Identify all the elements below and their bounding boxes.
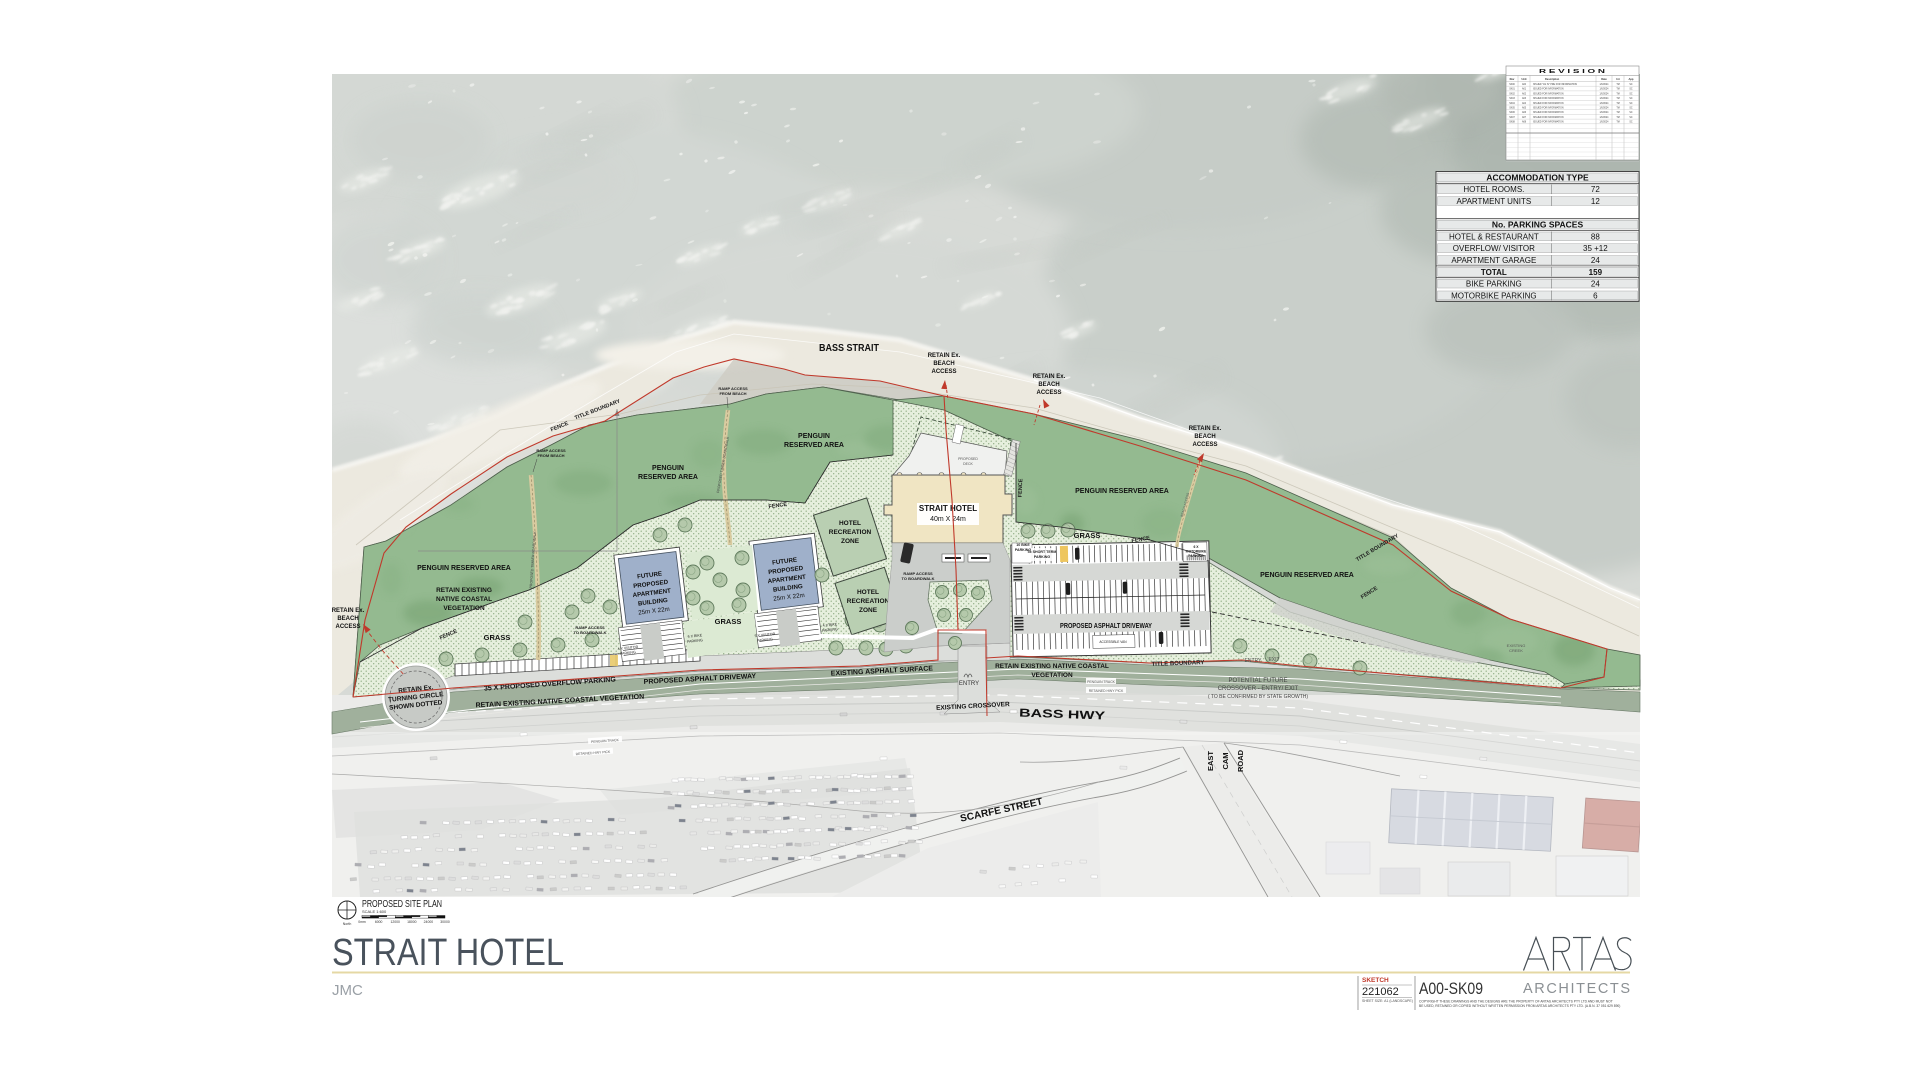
- svg-text:TM: TM: [1616, 93, 1619, 95]
- svg-text:ACCOMMODATION TYPE: ACCOMMODATION TYPE: [1486, 172, 1589, 182]
- svg-text:0mm: 0mm: [358, 920, 366, 924]
- svg-text:BEACH: BEACH: [337, 616, 358, 622]
- svg-text:RETAIN Ex.: RETAIN Ex.: [1033, 374, 1066, 380]
- svg-text:FENCE: FENCE: [1018, 478, 1025, 497]
- svg-text:TM: TM: [1616, 89, 1619, 91]
- svg-text:40m X 24m: 40m X 24m: [930, 516, 966, 523]
- svg-text:159: 159: [1589, 268, 1603, 277]
- svg-text:TO BOARDWALK: TO BOARDWALK: [901, 576, 934, 581]
- svg-text:PARKING: PARKING: [1015, 548, 1032, 552]
- svg-text:Date: Date: [1601, 77, 1607, 81]
- svg-text:No. PARKING SPACES: No. PARKING SPACES: [1492, 220, 1584, 230]
- svg-text:PENGUIN: PENGUIN: [652, 465, 684, 472]
- svg-text:88: 88: [1591, 232, 1600, 241]
- svg-text:A07: A07: [1522, 116, 1527, 119]
- svg-text:1/0/2024: 1/0/2024: [1600, 112, 1610, 114]
- svg-text:ACCESS: ACCESS: [931, 369, 956, 375]
- svg-text:1/0/2024: 1/0/2024: [1600, 117, 1610, 119]
- svg-text:EAST: EAST: [1206, 751, 1215, 771]
- svg-text:PENGUIN RESERVED AREA: PENGUIN RESERVED AREA: [1075, 488, 1169, 495]
- svg-text:SCALE 1:600: SCALE 1:600: [362, 909, 387, 914]
- svg-text:Int: Int: [1616, 77, 1619, 81]
- svg-text:SC: SC: [1629, 112, 1633, 114]
- svg-text:SC: SC: [1629, 84, 1633, 86]
- svg-text:STRAIT HOTEL: STRAIT HOTEL: [332, 932, 564, 974]
- svg-text:SK04: SK04: [1509, 103, 1515, 105]
- svg-text:1/0/2024: 1/0/2024: [1600, 103, 1610, 105]
- svg-text:SC: SC: [1629, 122, 1633, 124]
- svg-text:ISSUED "AS IS" PRE FOR INFORMA: ISSUED "AS IS" PRE FOR INFORMATION: [1533, 83, 1577, 86]
- svg-text:6 X: 6 X: [1193, 545, 1199, 549]
- svg-text:30000: 30000: [440, 920, 450, 924]
- svg-text:BE USED, RETAINED OR COPIED WI: BE USED, RETAINED OR COPIED WITHOUT WRIT…: [1419, 1004, 1620, 1008]
- svg-text:TM: TM: [1616, 108, 1619, 110]
- svg-text:PROPOSED ASPHALT DRIVEWAY: PROPOSED ASPHALT DRIVEWAY: [1060, 621, 1152, 630]
- svg-text:APARTMENT GARAGE: APARTMENT GARAGE: [1451, 256, 1536, 265]
- svg-text:HOTEL ROOMS.: HOTEL ROOMS.: [1463, 185, 1524, 194]
- svg-text:PENGUIN TRACK: PENGUIN TRACK: [1087, 680, 1116, 684]
- svg-text:RESERVED AREA: RESERVED AREA: [638, 474, 698, 481]
- svg-text:ISSUED FOR INFORMATION: ISSUED FOR INFORMATION: [1533, 88, 1564, 91]
- svg-text:TO BOARDWALK: TO BOARDWALK: [573, 630, 606, 635]
- svg-text:TM: TM: [1616, 122, 1619, 124]
- svg-text:RECREATION: RECREATION: [847, 598, 890, 605]
- svg-text:DECK: DECK: [963, 462, 973, 466]
- svg-text:A08: A08: [1522, 121, 1527, 124]
- svg-text:ISSUED FOR INFORMATION: ISSUED FOR INFORMATION: [1533, 92, 1564, 95]
- svg-text:PARKING: PARKING: [1034, 555, 1051, 559]
- svg-text:SK08: SK08: [1509, 122, 1515, 124]
- svg-text:TM: TM: [1616, 103, 1619, 105]
- svg-text:A00: A00: [1522, 83, 1527, 86]
- svg-text:VEGETATION: VEGETATION: [443, 605, 485, 612]
- svg-text:6000: 6000: [375, 920, 383, 924]
- svg-text:NATIVE COASTAL: NATIVE COASTAL: [436, 596, 492, 603]
- svg-text:ISSUED FOR INFORMATION: ISSUED FOR INFORMATION: [1533, 102, 1564, 105]
- svg-text:CAM: CAM: [1221, 752, 1230, 769]
- svg-text:SKETCH: SKETCH: [1362, 977, 1389, 984]
- svg-text:BASS STRAIT: BASS STRAIT: [819, 343, 879, 354]
- svg-text:PENGUIN RESERVED AREA: PENGUIN RESERVED AREA: [417, 565, 511, 572]
- svg-text:ISSUED FOR INFORMATION: ISSUED FOR INFORMATION: [1533, 107, 1564, 110]
- svg-text:RETAIN EXISTING NATIVE COASTAL: RETAIN EXISTING NATIVE COASTAL: [995, 663, 1109, 670]
- svg-text:A04: A04: [1522, 102, 1527, 105]
- svg-text:SK02: SK02: [1509, 93, 1515, 95]
- svg-text:BEACH: BEACH: [933, 361, 954, 367]
- svg-text:1/0/2024: 1/0/2024: [1600, 122, 1610, 124]
- svg-text:221062: 221062: [1362, 986, 1399, 998]
- svg-text:10 BIKE: 10 BIKE: [1016, 543, 1030, 547]
- svg-text:35 +12: 35 +12: [1583, 244, 1608, 253]
- svg-text:SC: SC: [1629, 89, 1633, 91]
- svg-text:ISSUED FOR INFORMATION: ISSUED FOR INFORMATION: [1533, 97, 1564, 100]
- svg-text:1/0/2024: 1/0/2024: [1600, 98, 1610, 100]
- svg-text:ISSUED FOR INFORMATION: ISSUED FOR INFORMATION: [1533, 111, 1564, 114]
- svg-text:BEACH: BEACH: [1194, 434, 1215, 440]
- svg-text:TM: TM: [1616, 117, 1619, 119]
- svg-text:PROPOSED: PROPOSED: [958, 457, 978, 461]
- svg-text:12000: 12000: [390, 920, 400, 924]
- svg-text:JMC: JMC: [332, 982, 363, 999]
- svg-text:SC: SC: [1629, 103, 1633, 105]
- svg-text:1/0/2024: 1/0/2024: [1600, 84, 1610, 86]
- svg-text:BEACH: BEACH: [1038, 382, 1059, 388]
- svg-text:ROAD: ROAD: [1236, 749, 1245, 772]
- svg-text:A05: A05: [1522, 107, 1527, 110]
- svg-text:GRASS: GRASS: [715, 617, 742, 626]
- svg-text:RECREATION: RECREATION: [829, 529, 872, 536]
- svg-text:CREEK: CREEK: [1509, 648, 1523, 653]
- svg-text:Description: Description: [1545, 77, 1560, 81]
- svg-text:RETAIN Ex.: RETAIN Ex.: [1189, 426, 1222, 432]
- svg-text:CROSSOVER - ENTRY/ EXIT: CROSSOVER - ENTRY/ EXIT: [1218, 686, 1299, 692]
- svg-text:PARKING: PARKING: [1188, 554, 1204, 558]
- svg-text:A02: A02: [1522, 92, 1527, 95]
- svg-text:STRAIT HOTEL: STRAIT HOTEL: [919, 504, 977, 513]
- svg-text:ACCESS: ACCESS: [1036, 390, 1061, 396]
- svg-text:SC: SC: [1629, 93, 1633, 95]
- svg-text:6: 6: [1593, 291, 1598, 300]
- svg-text:FROM BEACH: FROM BEACH: [537, 453, 564, 458]
- svg-text:A00-SK09: A00-SK09: [1419, 980, 1483, 998]
- svg-text:ZONE: ZONE: [841, 538, 860, 545]
- svg-text:TM: TM: [1616, 98, 1619, 100]
- svg-text:1/0/2024: 1/0/2024: [1600, 108, 1610, 110]
- svg-text:TOTAL: TOTAL: [1481, 268, 1507, 277]
- svg-text:TM: TM: [1616, 112, 1619, 114]
- svg-text:PENGUIN RESERVED AREA: PENGUIN RESERVED AREA: [1260, 572, 1354, 579]
- svg-text:EXIT: EXIT: [1268, 657, 1279, 663]
- svg-text:SK03: SK03: [1509, 98, 1515, 100]
- svg-text:A03: A03: [1522, 97, 1527, 100]
- svg-text:24: 24: [1591, 256, 1600, 265]
- svg-text:24: 24: [1591, 280, 1600, 289]
- svg-text:HOTEL: HOTEL: [857, 589, 879, 596]
- svg-text:SK06: SK06: [1509, 112, 1515, 114]
- svg-text:SC: SC: [1629, 117, 1633, 119]
- svg-text:PENGUIN: PENGUIN: [798, 433, 830, 440]
- svg-text:COPYRIGHT THESE DRAWINGS AND T: COPYRIGHT THESE DRAWINGS AND THE DESIGNS…: [1419, 1000, 1613, 1004]
- svg-text:1/0/2024: 1/0/2024: [1600, 89, 1610, 91]
- svg-text:ISSUED FOR INFORMATION: ISSUED FOR INFORMATION: [1533, 121, 1564, 124]
- svg-text:North: North: [343, 922, 352, 926]
- svg-text:R E V I S I O N: R E V I S I O N: [1539, 69, 1606, 75]
- svg-text:HOTEL: HOTEL: [839, 520, 861, 527]
- svg-text:RETAINED HWY PICK: RETAINED HWY PICK: [1089, 689, 1124, 693]
- svg-text:A06: A06: [1522, 111, 1527, 114]
- svg-text:SC: SC: [1629, 108, 1633, 110]
- svg-text:ENTRY: ENTRY: [959, 681, 979, 687]
- svg-text:SHEET SIZE: A1 (LANDSCAPE): SHEET SIZE: A1 (LANDSCAPE): [1362, 999, 1413, 1003]
- svg-text:24000: 24000: [424, 920, 434, 924]
- svg-text:ZONE: ZONE: [859, 607, 878, 614]
- svg-text:( TO BE CONFIRMED BY STATE GRO: ( TO BE CONFIRMED BY STATE GROWTH): [1208, 694, 1308, 700]
- svg-text:ENTRY: ENTRY: [1245, 658, 1263, 664]
- svg-text:TM: TM: [1616, 84, 1619, 86]
- svg-text:VEGETATION: VEGETATION: [1031, 672, 1073, 679]
- svg-text:APARTMENT UNITS: APARTMENT UNITS: [1457, 197, 1532, 206]
- svg-text:5x SHORT TERM: 5x SHORT TERM: [1028, 550, 1057, 554]
- svg-text:1/0/2024: 1/0/2024: [1600, 93, 1610, 95]
- svg-text:ACCESSIBLE VAN: ACCESSIBLE VAN: [1099, 640, 1127, 644]
- svg-text:Unit: Unit: [1521, 77, 1526, 81]
- svg-text:18000: 18000: [407, 920, 417, 924]
- svg-text:SK00: SK00: [1509, 84, 1515, 86]
- svg-text:SC: SC: [1629, 98, 1633, 100]
- svg-text:RETAIN Ex.: RETAIN Ex.: [928, 353, 961, 359]
- svg-text:OVERFLOW/ VISITOR: OVERFLOW/ VISITOR: [1453, 244, 1535, 253]
- svg-text:RETAIN Ex.: RETAIN Ex.: [332, 608, 365, 614]
- svg-text:Rev: Rev: [1510, 77, 1515, 81]
- svg-text:HOTEL & RESTAURANT: HOTEL & RESTAURANT: [1449, 232, 1539, 241]
- svg-text:ACCESS: ACCESS: [335, 624, 360, 630]
- svg-text:72: 72: [1591, 185, 1600, 194]
- svg-text:RETAIN EXISTING: RETAIN EXISTING: [436, 587, 492, 594]
- svg-text:GRASS: GRASS: [484, 633, 511, 642]
- svg-text:ARCHITECTS: ARCHITECTS: [1523, 981, 1632, 997]
- svg-text:A01: A01: [1522, 88, 1527, 91]
- svg-text:FROM BEACH: FROM BEACH: [719, 391, 746, 396]
- svg-text:ACCESS: ACCESS: [1192, 442, 1217, 448]
- svg-text:SK05: SK05: [1509, 108, 1515, 110]
- svg-text:MOTORBIKE PARKING: MOTORBIKE PARKING: [1451, 291, 1537, 300]
- svg-text:SK01: SK01: [1509, 89, 1515, 91]
- svg-text:SK07: SK07: [1509, 117, 1515, 119]
- svg-text:ISSUED FOR INFORMATION: ISSUED FOR INFORMATION: [1533, 116, 1564, 119]
- svg-text:App: App: [1628, 77, 1633, 81]
- svg-text:RESERVED AREA: RESERVED AREA: [784, 442, 844, 449]
- svg-text:12: 12: [1591, 197, 1600, 206]
- svg-text:BIKE PARKING: BIKE PARKING: [1466, 280, 1522, 289]
- svg-text:POTENTIAL FUTURE: POTENTIAL FUTURE: [1228, 678, 1287, 684]
